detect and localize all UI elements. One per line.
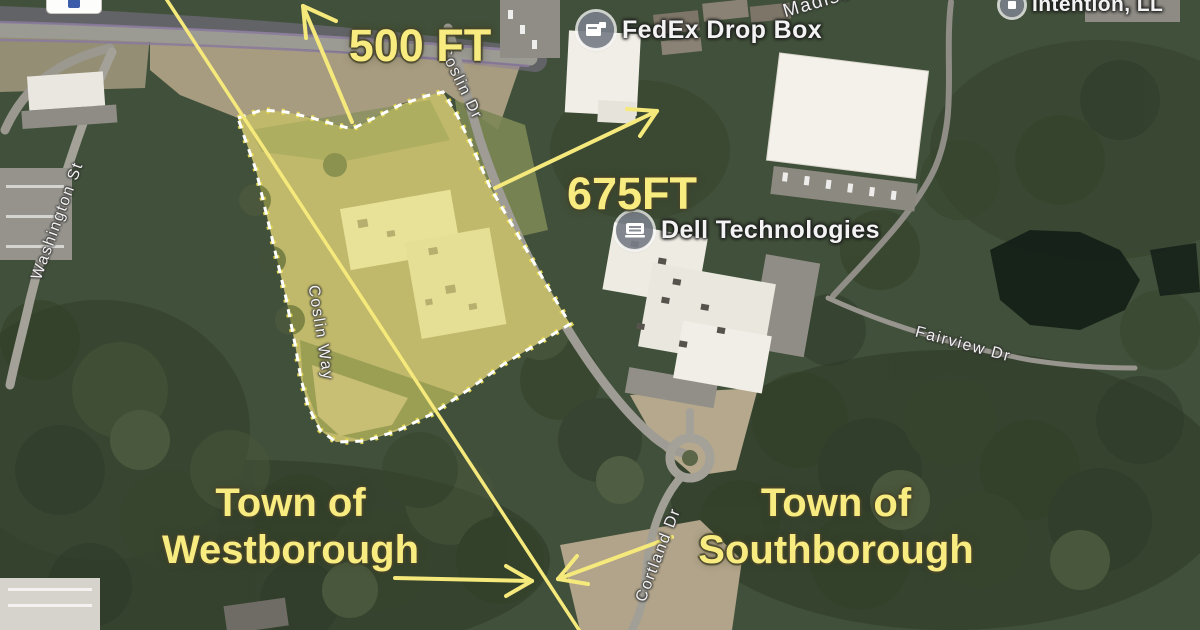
poi-fedex-label[interactable]: FedEx Drop Box [622, 16, 822, 45]
business-icon[interactable] [1000, 0, 1024, 17]
town-label-westborough: Town of Westborough [118, 480, 463, 574]
town-southborough-line1: Town of [662, 480, 1010, 527]
route-shield-glyph [68, 0, 80, 8]
town-label-southborough: Town of Southborough [662, 480, 1010, 574]
poi-dell-label[interactable]: Dell Technologies [661, 216, 880, 245]
town-southborough-line2: Southborough [662, 527, 1010, 574]
satellite-map[interactable]: Madison Intention, LL FedEx Drop Box [0, 0, 1200, 630]
fedex-dropbox-icon[interactable] [578, 12, 614, 48]
town-westborough-line1: Town of [118, 480, 463, 527]
poi-intention-label[interactable]: Intention, LL [1032, 0, 1163, 17]
route-shield [46, 0, 102, 14]
distance-label-675ft: 675FT [532, 168, 732, 220]
poi-fedex[interactable]: FedEx Drop Box [578, 12, 822, 48]
town-westborough-line2: Westborough [118, 527, 463, 574]
distance-label-500ft: 500 FT [320, 20, 520, 72]
poi-intention[interactable]: Intention, LL [1000, 0, 1163, 17]
